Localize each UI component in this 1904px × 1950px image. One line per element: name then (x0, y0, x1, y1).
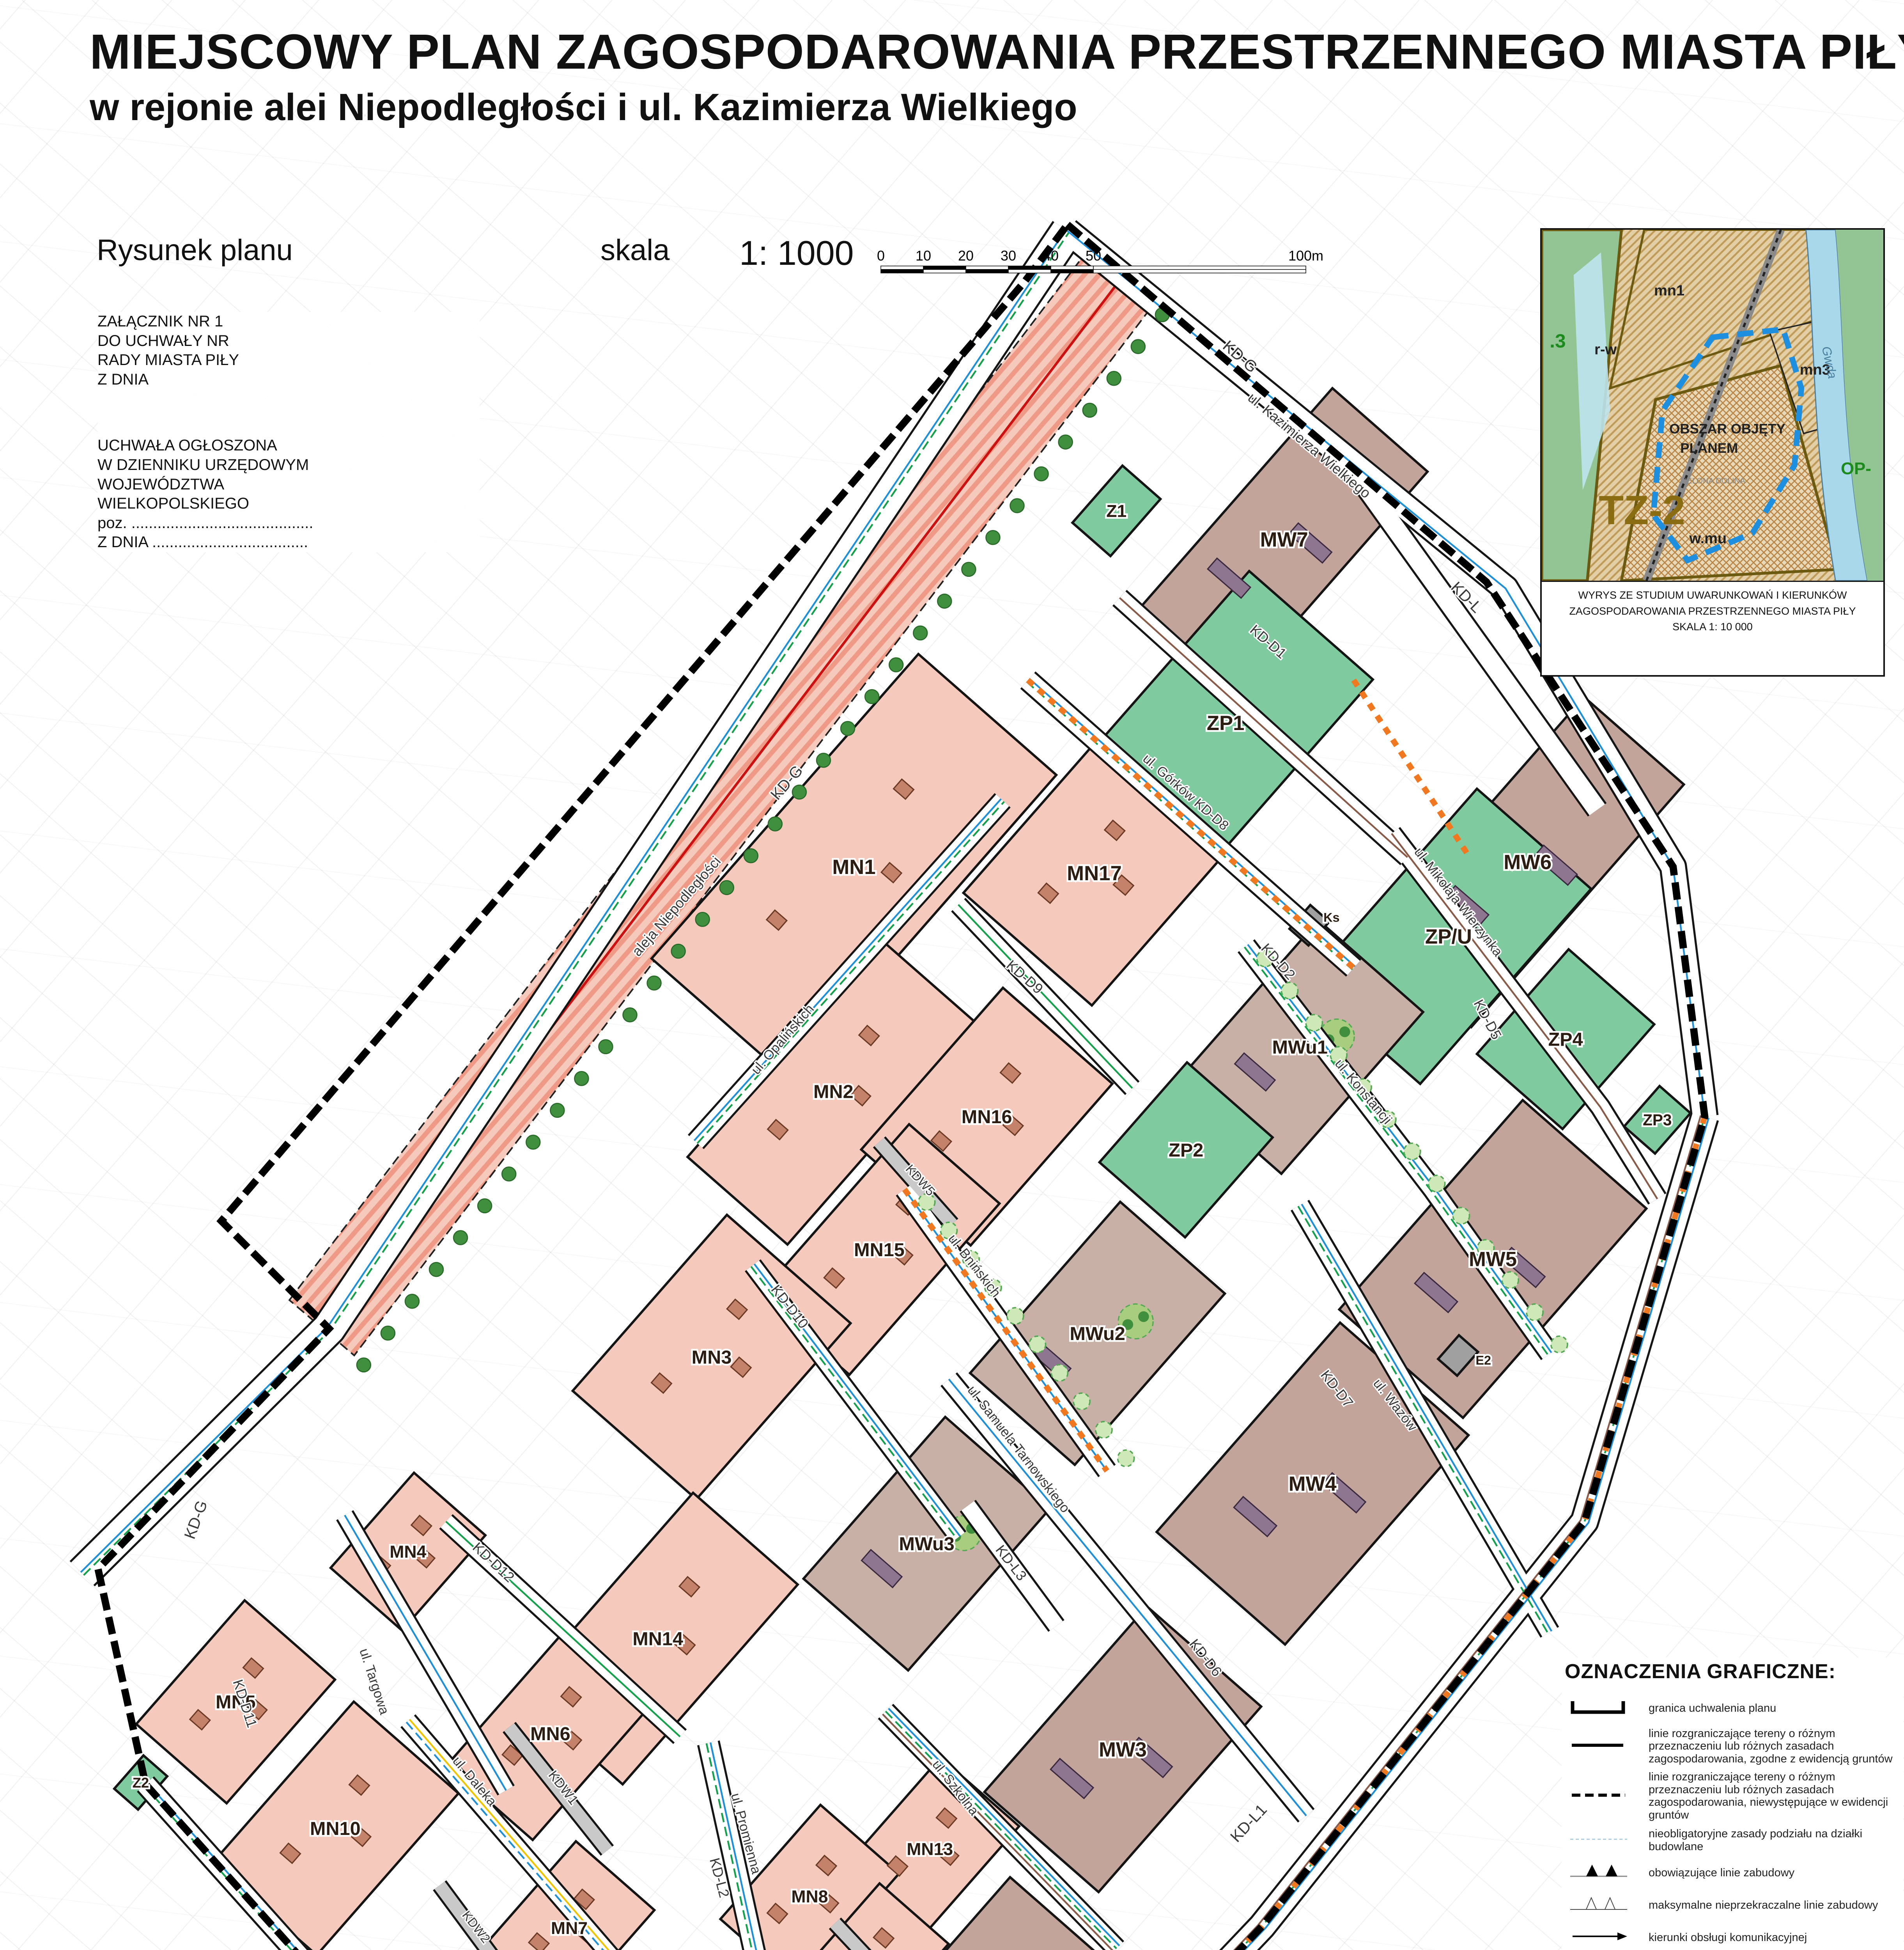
zone-label-MN2: MN2 (813, 1081, 854, 1102)
tree-icon (889, 658, 903, 672)
zone-label-MN17: MN17 (1067, 862, 1122, 885)
zone-label-MN8: MN8 (791, 1887, 828, 1906)
zone-label-MN10: MN10 (310, 1818, 361, 1839)
legend-item: granica uchwalenia planu (1565, 1695, 1903, 1722)
zone-label-MN13: MN13 (907, 1840, 953, 1859)
scale-seg (881, 266, 923, 269)
inset-caption-line: ZAGOSPODAROWANIA PRZESTRZENNEGO MIASTA P… (1545, 603, 1880, 619)
scale-tick: 40 (1043, 248, 1059, 264)
zone-label-MWu3: MWu3 (899, 1533, 954, 1555)
zone-label-MW6: MW6 (1504, 851, 1552, 874)
tree-icon (575, 1072, 589, 1086)
scale-tick: 10 (916, 248, 931, 264)
legend-item-text: obowiązujące linie zabudowy (1649, 1867, 1794, 1879)
bracket-icon (1565, 1695, 1639, 1720)
legend-item: nieobligatoryjne zasady podziału na dzia… (1565, 1827, 1903, 1854)
tree-icon (381, 1326, 395, 1340)
zone-label-Z2: Z2 (133, 1774, 149, 1790)
scale-tick: 20 (958, 248, 974, 264)
tree-icon (1051, 1365, 1068, 1381)
zone-label-MW3: MW3 (1099, 1738, 1147, 1761)
scale-end: 100m (1288, 248, 1323, 264)
zone-label-ZP/U: ZP/U (1425, 925, 1472, 948)
page-title: MIEJSCOWY PLAN ZAGOSPODAROWANIA PRZESTRZ… (90, 23, 1844, 80)
legend-item-text: kierunki obsługi komunikacyjnej (1649, 1931, 1807, 1944)
tree-icon (720, 881, 734, 895)
tree-icon (357, 1358, 371, 1372)
tree-icon (478, 1199, 492, 1213)
tree-icon (937, 594, 951, 608)
tree-icon (768, 817, 782, 831)
drawing-label: Rysunek planu (97, 233, 293, 267)
zone-label-E2: E2 (1475, 1353, 1491, 1367)
scale-seg (1051, 266, 1093, 269)
tree-icon (792, 785, 806, 799)
dash-line-icon (1565, 1783, 1639, 1808)
inset-label: w.mu (1689, 530, 1727, 547)
tree-icon (405, 1294, 419, 1308)
tree-icon (817, 753, 831, 768)
legend-item: kierunki obsługi komunikacyjnej (1565, 1924, 1903, 1950)
tri-filled-icon (1565, 1859, 1639, 1884)
tri-filled-icon (1565, 1859, 1649, 1886)
tree-icon (671, 944, 685, 958)
zone-label-MWu1: MWu1 (1272, 1037, 1328, 1058)
zone-label-MN4: MN4 (390, 1542, 426, 1562)
zone-label-MN3: MN3 (692, 1347, 732, 1368)
tree-icon (1096, 1422, 1112, 1438)
zone-label-MN6: MN6 (530, 1723, 570, 1744)
scale-seg (1051, 269, 1093, 273)
tree-icon (453, 1231, 468, 1245)
tree-icon (1010, 499, 1024, 513)
tree-icon (1073, 1393, 1090, 1409)
zone-label-Ks: Ks (1323, 911, 1339, 925)
tree-icon (1034, 467, 1049, 481)
zone-label-MW7: MW7 (1260, 528, 1308, 551)
arrow-icon (1565, 1924, 1639, 1949)
street-label: KD-L1 (1227, 1801, 1270, 1845)
tree-icon (865, 690, 879, 704)
tree-icon (647, 976, 661, 990)
scale-seg (881, 269, 923, 273)
legend-item-text: linie rozgraniczające tereny o różnym pr… (1649, 1771, 1903, 1821)
street-label: ul. Równa (210, 1948, 272, 1950)
legend-item-text: nieobligatoryjne zasady podziału na dzia… (1649, 1828, 1903, 1853)
thin-dash-icon (1565, 1827, 1649, 1854)
inset-label: mn1 (1654, 282, 1684, 299)
tree-icon (841, 721, 855, 736)
scale-value: 1: 1000 (739, 233, 854, 273)
attachment-note: ZAŁĄCZNIK NR 1 DO UCHWAŁY NR RADY MIASTA… (97, 312, 480, 389)
tree-icon (1118, 1450, 1134, 1466)
tree-icon (1404, 1143, 1420, 1159)
dash-line-icon (1565, 1783, 1649, 1810)
zone-label-Z1: Z1 (1106, 502, 1126, 521)
scale-seg (966, 266, 1008, 269)
zone-label-MN16: MN16 (962, 1106, 1012, 1127)
solid-line-icon (1565, 1733, 1639, 1758)
street-label: ul. Targowa (356, 1647, 392, 1717)
margin-notes: ZAŁĄCZNIK NR 1 DO UCHWAŁY NR RADY MIASTA… (97, 312, 480, 552)
tri-hollow-icon (1565, 1891, 1639, 1916)
legend-item-text: maksymalne nieprzekraczalne linie zabudo… (1649, 1899, 1878, 1911)
scale-tick: 50 (1086, 248, 1101, 264)
tree-icon (1306, 1014, 1322, 1031)
announcement-note: UCHWAŁA OGŁOSZONA W DZIENNIKU URZĘDOWYM … (97, 436, 480, 552)
arrow-icon (1565, 1924, 1649, 1950)
inset-caption-line: WYRYS ZE STUDIUM UWARUNKOWAŃ I KIERUNKÓW (1545, 587, 1880, 603)
tree-icon (962, 562, 976, 576)
tree-icon (1281, 982, 1298, 999)
tree-icon (913, 626, 927, 640)
inset-label: OP- (1841, 459, 1871, 478)
header: MIEJSCOWY PLAN ZAGOSPODAROWANIA PRZESTRZ… (90, 23, 1844, 129)
street-label: KD-G (181, 1498, 211, 1541)
tree-icon (696, 913, 710, 927)
legend-title: OZNACZENIA GRAFICZNE: (1565, 1660, 1903, 1683)
zone-label-MN15: MN15 (854, 1239, 905, 1260)
inset-label: r-w (1594, 341, 1617, 358)
tree-icon (1131, 340, 1145, 354)
tree-icon (1029, 1336, 1045, 1353)
tree-icon (1502, 1272, 1518, 1288)
tree-icon (1107, 371, 1121, 385)
legend-graphic-items: granica uchwalenia planu linie rozgranic… (1565, 1695, 1903, 1950)
bracket-icon (1565, 1695, 1649, 1722)
study-extract-map: mn1mn3r-w.3OP-w.muOBSZAR OBJĘTYPLANEMZIE… (1542, 230, 1883, 581)
legend-item: maksymalne nieprzekraczalne linie zabudo… (1565, 1891, 1903, 1918)
zone-label-ZP2: ZP2 (1169, 1140, 1203, 1161)
scale-label: skala (600, 233, 669, 267)
page-subtitle: w rejonie alei Niepodległości i ul. Kazi… (90, 85, 1844, 129)
zone-label-MW5: MW5 (1469, 1248, 1517, 1271)
zone-label-MN1: MN1 (832, 856, 875, 879)
tree-icon (599, 1040, 613, 1054)
scale-tick: 30 (1001, 248, 1016, 264)
inset-label: .3 (1550, 330, 1566, 352)
tree-icon (526, 1135, 540, 1149)
tree-icon (623, 1008, 637, 1022)
scale-seg (1008, 266, 1051, 269)
tree-icon (429, 1262, 443, 1276)
tree-icon (550, 1103, 564, 1117)
scale-bar-svg: 01020304050100m (875, 242, 1324, 289)
tree-icon (1059, 435, 1073, 449)
tree-icon (1527, 1304, 1543, 1321)
zone-label-MW4: MW4 (1289, 1472, 1337, 1495)
tree-icon (1453, 1207, 1469, 1224)
legend-item: linie rozgraniczające tereny o różnym pr… (1565, 1727, 1903, 1765)
zone-label-MWu2: MWu2 (1070, 1323, 1125, 1344)
tree-icon (1083, 403, 1097, 417)
inset-label: OBSZAR OBJĘTY (1669, 422, 1785, 437)
scale-seg (923, 269, 966, 273)
inset-label: TZ-2 (1599, 487, 1685, 533)
tree-icon (1138, 1311, 1149, 1322)
tree-icon (1339, 1026, 1350, 1037)
tree-icon (502, 1167, 516, 1181)
thin-dash-icon (1565, 1827, 1639, 1852)
inset-label: ZIELONA DOLINA (1680, 477, 1745, 485)
zone-label-ZP4: ZP4 (1548, 1029, 1583, 1050)
tree-icon (986, 530, 1000, 544)
zone-label-ZP3: ZP3 (1643, 1111, 1672, 1129)
inset-caption-line: SKALA 1: 10 000 (1545, 619, 1880, 635)
scale-tick: 0 (877, 248, 885, 264)
scale-bar: 01020304050100m (875, 242, 1324, 289)
legend-item: obowiązujące linie zabudowy (1565, 1859, 1903, 1886)
tree-icon (1007, 1308, 1024, 1324)
legend-item-text: granica uchwalenia planu (1649, 1702, 1776, 1714)
study-extract-inset: mn1mn3r-w.3OP-w.muOBSZAR OBJĘTYPLANEMZIE… (1540, 228, 1885, 677)
tree-icon (1428, 1175, 1445, 1192)
tri-hollow-icon (1565, 1891, 1649, 1918)
solid-line-icon (1565, 1733, 1649, 1760)
zone-label-ZP1: ZP1 (1207, 712, 1245, 735)
scale-seg (923, 266, 966, 269)
scale-seg (1008, 269, 1051, 273)
inset-label: PLANEM (1680, 441, 1738, 456)
legend-item-text: linie rozgraniczające tereny o różnym pr… (1649, 1727, 1903, 1765)
inset-caption: WYRYS ZE STUDIUM UWARUNKOWAŃ I KIERUNKÓW… (1542, 581, 1883, 635)
zone-label-MN14: MN14 (632, 1628, 683, 1649)
tree-icon (1551, 1336, 1567, 1353)
scale-seg (966, 269, 1008, 273)
tree-icon (744, 849, 758, 863)
legend-item: linie rozgraniczające tereny o różnym pr… (1565, 1771, 1903, 1821)
zone-label-MN7: MN7 (551, 1919, 588, 1938)
legend: OZNACZENIA GRAFICZNE: granica uchwalenia… (1562, 1657, 1903, 1950)
